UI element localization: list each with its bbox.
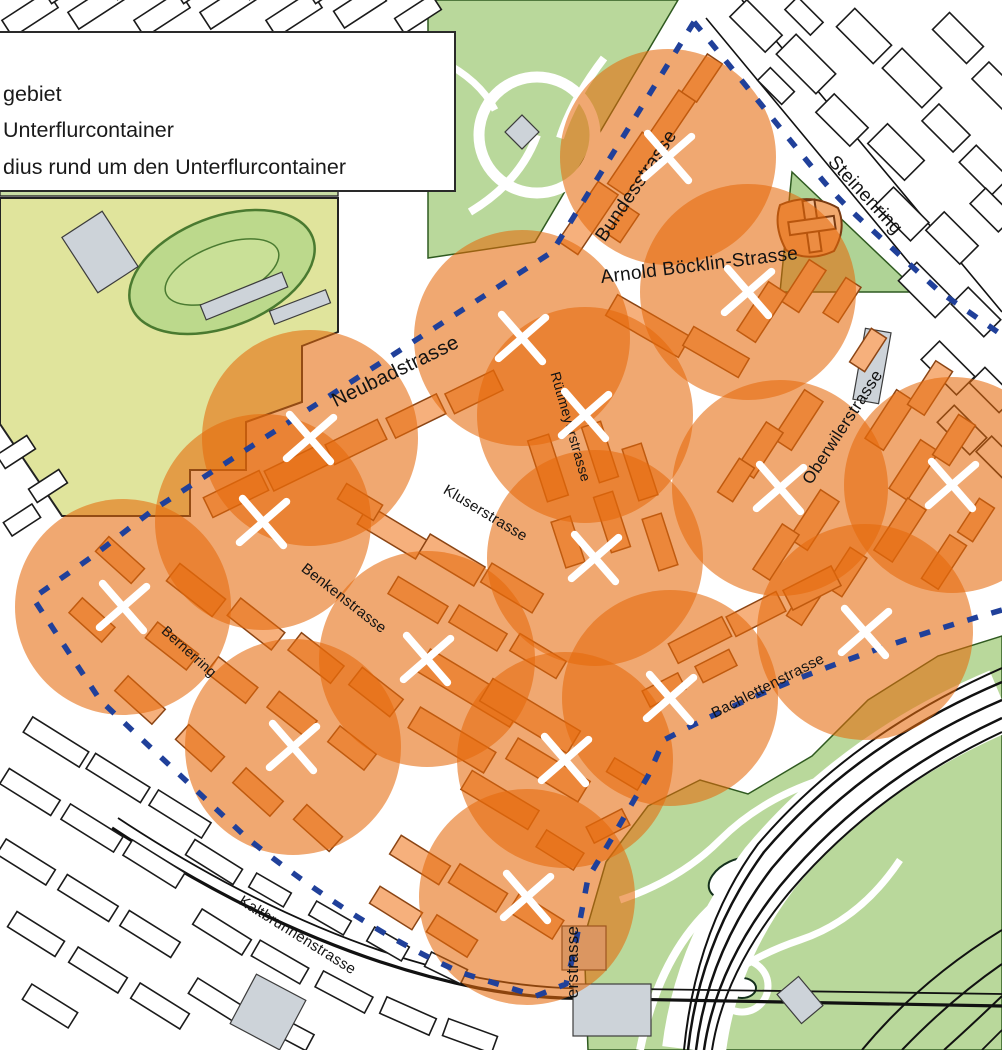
map: BundesstrasseSteinenringArnold Böcklin-S…	[0, 0, 1002, 1050]
legend-item-radius: dius rund um den Unterflurcontainer	[3, 155, 346, 180]
legend: gebiet Unterflurcontainer dius rund um d…	[0, 31, 456, 192]
street-label: erstrasse	[563, 926, 582, 999]
legend-item-area: gebiet	[3, 82, 62, 107]
legend-item-container-location: Unterflurcontainer	[3, 118, 174, 143]
